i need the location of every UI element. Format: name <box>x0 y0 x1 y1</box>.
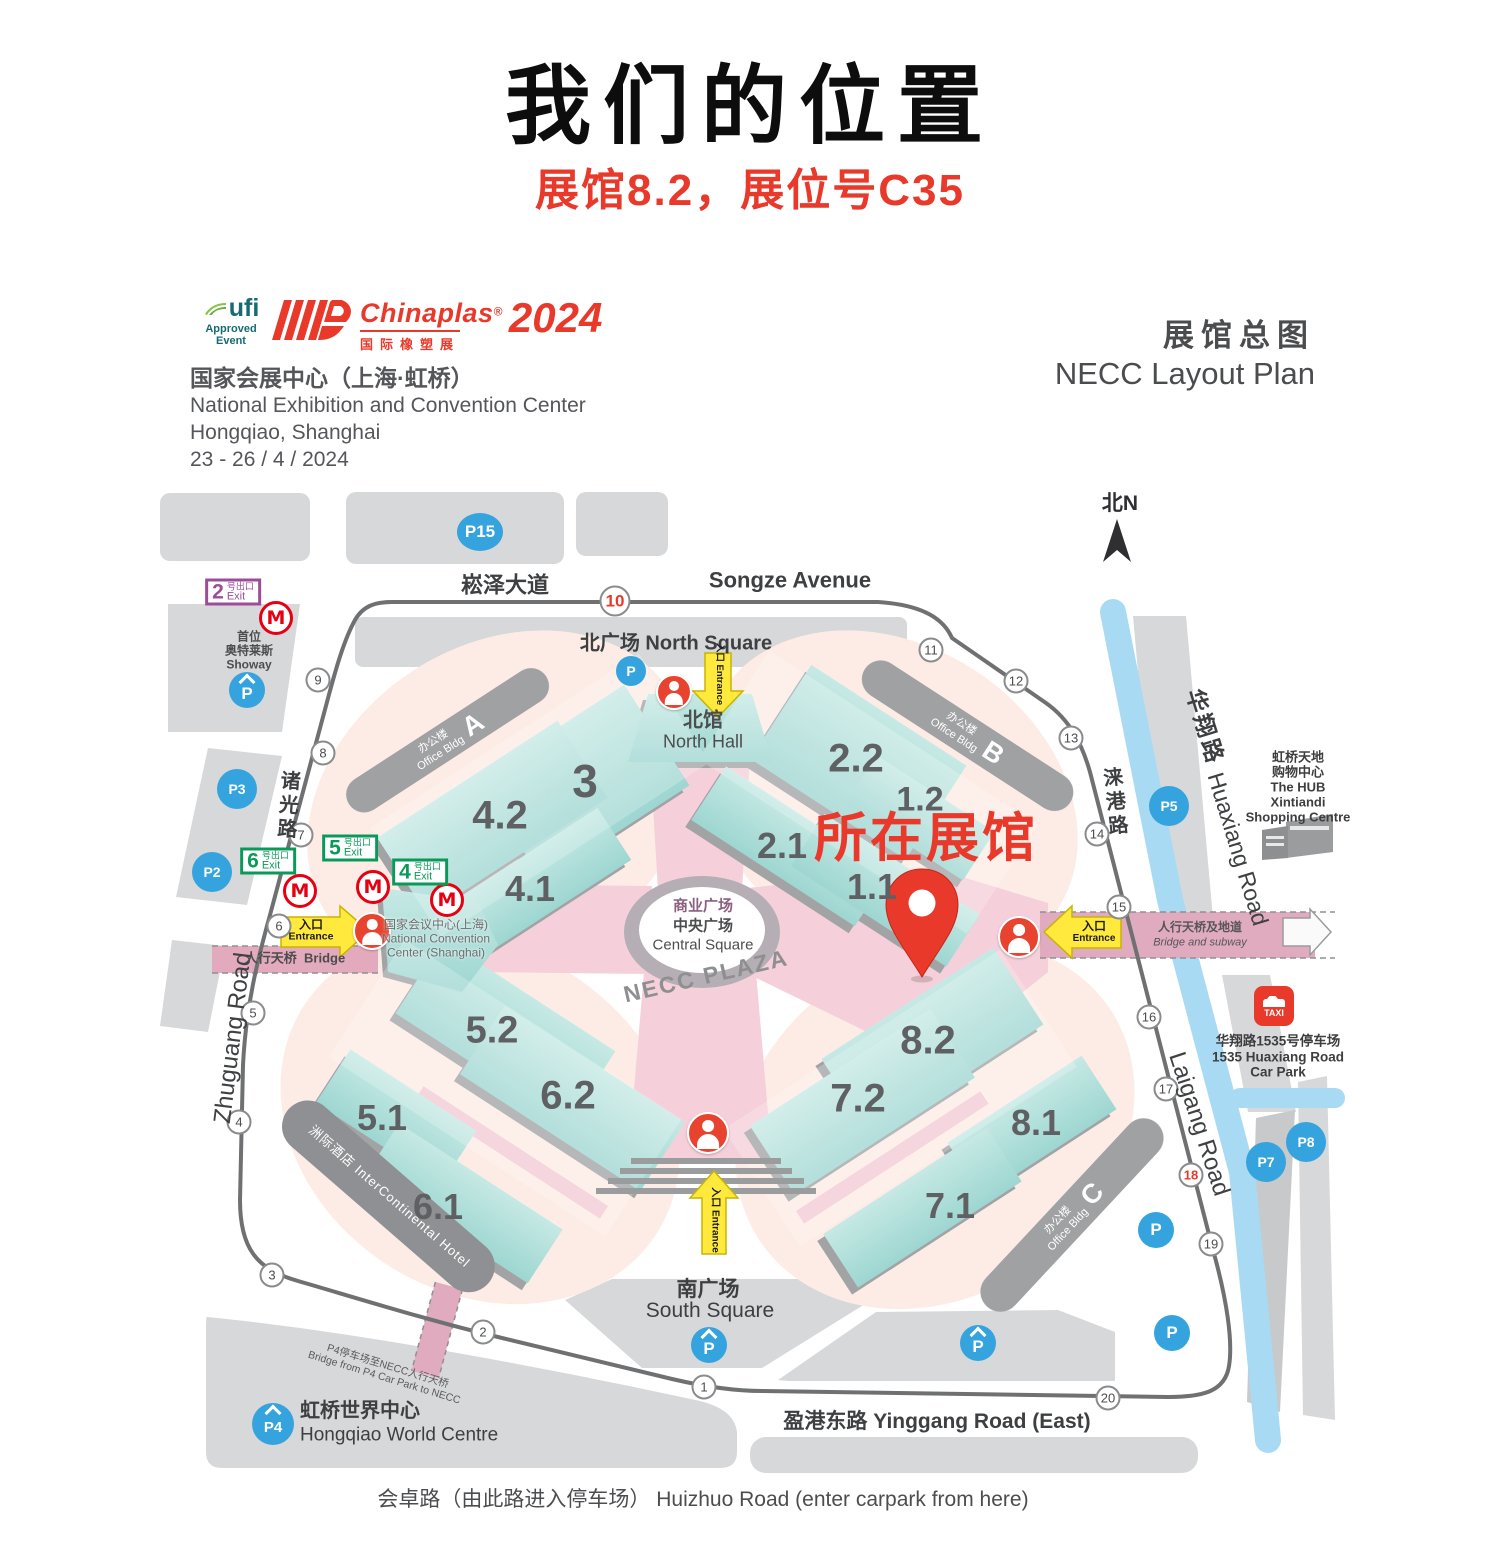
road-marker-19: 19 <box>1199 1232 1224 1257</box>
road-yinggang: 盈港东路 Yinggang Road (East) <box>783 1410 1090 1434</box>
south-entrance-label: 入口 Entrance <box>710 1187 721 1253</box>
road-songze-en: Songze Avenue <box>709 567 871 592</box>
hall-label-8.2: 8.2 <box>900 1019 956 1064</box>
hub-line3: The HUB <box>1271 781 1326 796</box>
parking-icon-p: P <box>229 672 265 708</box>
west-entrance-label: 入口 Entrance <box>289 919 334 944</box>
parking-label: P5 <box>1160 798 1177 814</box>
east-band-label-cn: 人行天桥及地道 <box>1158 921 1242 935</box>
information-person-icon <box>687 1112 729 1154</box>
parking-label: P <box>626 663 635 679</box>
parking-icon-p4: P4 <box>252 1403 294 1445</box>
carpark-line1: 华翔路1535号停车场 <box>1216 1034 1341 1050</box>
hall-label-1.1: 1.1 <box>847 866 897 908</box>
road-marker-12: 12 <box>1004 669 1029 694</box>
west-bridge-label: 人行天桥 Bridge <box>245 952 345 967</box>
parking-label: P3 <box>228 781 245 797</box>
parking-label: P <box>703 1339 714 1359</box>
metro-exit-4-badge: 4号出口Exit <box>392 859 448 886</box>
road-marker-13: 13 <box>1059 726 1084 751</box>
taxi-car-icon <box>1261 995 1287 1008</box>
parking-label: P <box>1166 1323 1177 1343</box>
road-marker-20: 20 <box>1096 1386 1121 1411</box>
north-square-label: 北广场 North Square <box>580 633 772 656</box>
ncc-line2: National Convention <box>382 932 490 946</box>
parking-icon-p5: P5 <box>1149 786 1189 826</box>
south-entrance-en: Entrance <box>710 1210 721 1253</box>
road-marker-1: 1 <box>692 1375 717 1400</box>
parking-label: P7 <box>1257 1154 1274 1170</box>
taxi-stand-icon: TAXI <box>1254 986 1294 1026</box>
parking-label: P2 <box>203 864 220 880</box>
parking-label: P <box>1150 1220 1161 1240</box>
our-hall-callout: 所在展馆 <box>814 796 1038 872</box>
east-entrance-en: Entrance <box>1073 933 1116 944</box>
parking-icon-p: P <box>960 1325 996 1361</box>
central-square-label-en: Central Square <box>653 936 754 953</box>
showway-line2: 奥特莱斯 <box>225 644 273 658</box>
parking-icon-p7: P7 <box>1246 1142 1286 1182</box>
road-marker-8: 8 <box>311 741 336 766</box>
hub-line5: Shopping Centre <box>1246 810 1351 825</box>
hall-label-7.2: 7.2 <box>830 1077 886 1122</box>
hall-label-7.1: 7.1 <box>925 1185 975 1227</box>
hall-label-2.2: 2.2 <box>828 737 884 782</box>
road-marker-2: 2 <box>471 1320 496 1345</box>
carpark-1535-label: 华翔路1535号停车场 1535 Huaxiang Road Car Park <box>1212 1034 1344 1081</box>
road-marker-15: 15 <box>1107 895 1132 920</box>
road-marker-11: 11 <box>919 638 944 663</box>
road-huizhuo: 会卓路（由此路进入停车场） Huizhuo Road (enter carpar… <box>377 1488 1028 1512</box>
north-entrance-label: 入口 Entrance <box>714 643 724 705</box>
necc-location-poster: 我们的位置 展馆8.2，展位号C35 ufi Approved Event <box>0 0 1500 1547</box>
ncc-line1: 国家会议中心(上海) <box>384 918 488 932</box>
showway-line3: Showay <box>226 658 271 672</box>
road-marker-16: 16 <box>1137 1005 1162 1030</box>
showway-line1: 首位 <box>237 630 261 644</box>
road-marker-3: 3 <box>260 1263 285 1288</box>
hall-label-3: 3 <box>572 754 598 808</box>
shanghai-metro-logo-icon: M <box>430 883 464 917</box>
hall-label-6.2: 6.2 <box>540 1074 596 1119</box>
west-bridge-cn: 人行天桥 <box>245 951 297 966</box>
west-bridge-en: Bridge <box>304 951 345 966</box>
showway-label: 首位 奥特莱斯 Showay <box>225 630 273 671</box>
parking-label: P <box>241 684 252 704</box>
compass-north-label: 北N <box>1102 492 1138 516</box>
west-entrance-en: Entrance <box>289 932 334 944</box>
metro-exit-5-badge: 5号出口Exit <box>322 835 378 862</box>
hub-line1: 虹桥天地 <box>1272 751 1324 766</box>
central-square-label-cn2: 中央广场 <box>673 917 733 934</box>
parking-label: P <box>972 1337 983 1357</box>
hall-label-2.1: 2.1 <box>757 825 807 867</box>
shanghai-metro-logo-icon: M <box>356 870 390 904</box>
parking-icon-p: P <box>691 1327 727 1363</box>
information-person-icon <box>998 916 1040 958</box>
road-marker-9: 9 <box>306 668 331 693</box>
shanghai-metro-logo-icon: M <box>283 874 317 908</box>
north-hall-label-en: North Hall <box>663 732 743 753</box>
parking-icon-p8: P8 <box>1286 1122 1326 1162</box>
metro-exit-6-badge: 6号出口Exit <box>240 848 296 875</box>
hall-label-5.2: 5.2 <box>466 1010 519 1053</box>
hub-line4: Xintiandi <box>1271 795 1326 810</box>
hongqiao-world-centre-en: Hongqiao World Centre <box>300 1425 498 1448</box>
information-person-icon <box>656 674 692 710</box>
road-marker-10: 10 <box>600 586 631 617</box>
north-entrance-cn: 入口 <box>714 643 725 662</box>
north-entrance-en: Entrance <box>714 665 725 706</box>
parking-icon-p: P <box>616 656 646 686</box>
east-entrance-label: 入口 Entrance <box>1073 920 1116 944</box>
hub-shopping-centre-label: 虹桥天地 购物中心 The HUB Xintiandi Shopping Cen… <box>1246 751 1351 826</box>
central-square-label-cn1: 商业广场 <box>673 897 733 914</box>
hall-label-4.2: 4.2 <box>472 794 528 839</box>
parking-icon-p2: P2 <box>192 852 232 892</box>
hall-label-5.1: 5.1 <box>357 1097 407 1139</box>
parking-icon-p: P <box>1138 1212 1174 1248</box>
hall-label-4.1: 4.1 <box>505 868 555 910</box>
parking-icon-p3: P3 <box>217 769 257 809</box>
hongqiao-world-centre-cn: 虹桥世界中心 <box>300 1399 420 1423</box>
parking-label: P8 <box>1297 1134 1314 1150</box>
metro-exit-2-badge: 2号出口Exit <box>205 579 261 606</box>
taxi-label: TAXI <box>1264 1009 1284 1018</box>
carpark-line2: 1535 Huaxiang Road <box>1212 1049 1344 1065</box>
south-square-label-en: South Square <box>646 1299 774 1323</box>
parking-icon-p15: P15 <box>457 513 503 551</box>
hub-line2: 购物中心 <box>1272 766 1324 781</box>
south-entrance-cn: 入口 <box>710 1187 721 1207</box>
east-entrance-cn: 入口 <box>1082 920 1106 933</box>
national-convention-center-label: 国家会议中心(上海) National Convention Center (S… <box>382 918 490 959</box>
hall-label-8.1: 8.1 <box>1011 1102 1061 1144</box>
north-hall-label-cn: 北馆 <box>683 710 723 733</box>
carpark-line3: Car Park <box>1250 1065 1306 1081</box>
road-songze-cn: 崧泽大道 <box>461 572 549 597</box>
parking-label: P15 <box>465 522 495 542</box>
parking-icon-p: P <box>1154 1315 1190 1351</box>
ncc-line3: Center (Shanghai) <box>387 946 485 960</box>
parking-label: P4 <box>264 1419 282 1436</box>
east-band-label-en: Bridge and subway <box>1153 937 1247 950</box>
